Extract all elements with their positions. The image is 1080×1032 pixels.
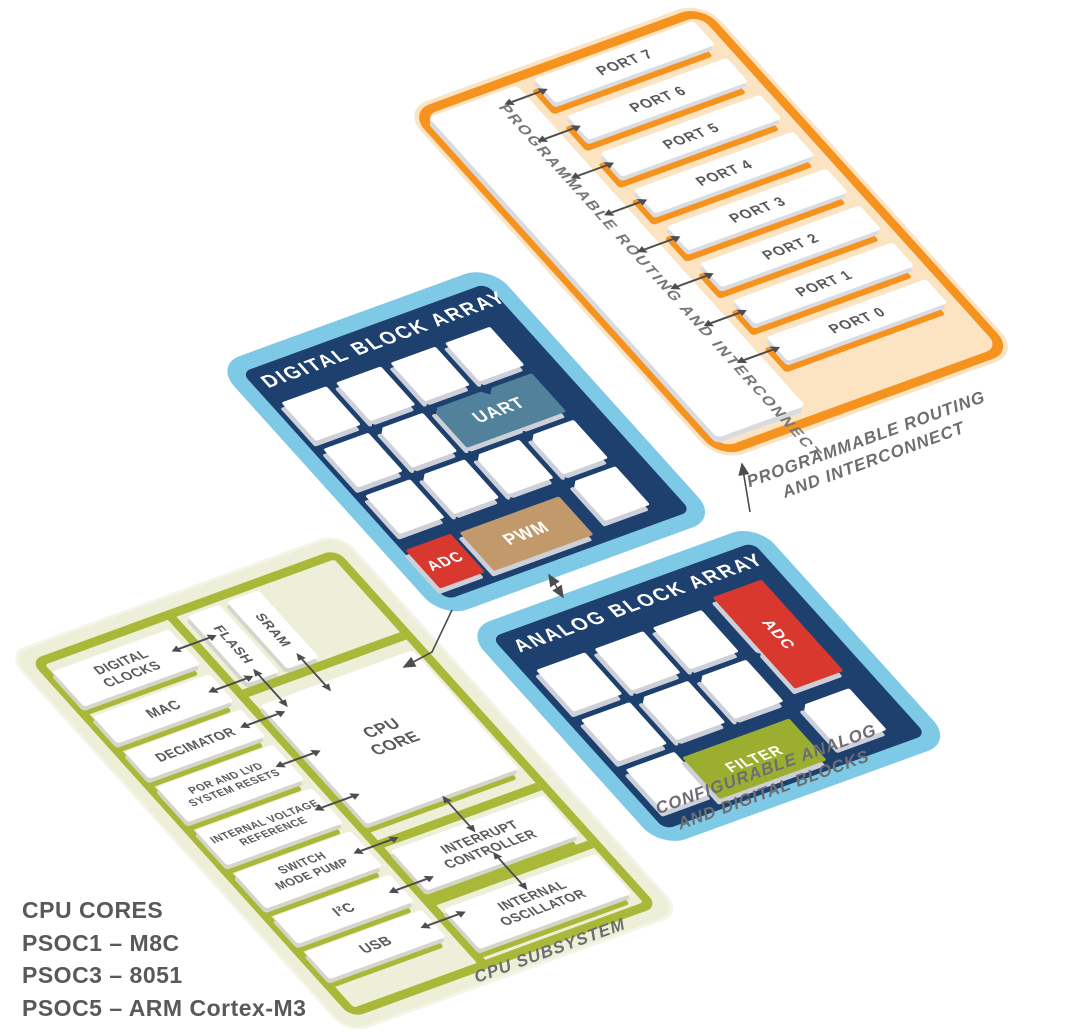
cpu-cores-legend: CPU CORES PSOC1 – M8C PSOC3 – 8051 PSOC5… [22, 894, 306, 1025]
legend-item-psoc5: PSOC5 – ARM Cortex-M3 [22, 992, 306, 1025]
psoc-architecture-diagram: PROGRAMMABLE ROUTING AND INTERCONNECT PO… [0, 0, 1080, 1030]
legend-item-psoc1: PSOC1 – M8C [22, 927, 306, 960]
analog-adc-label: ADC [757, 617, 799, 651]
legend-title: CPU CORES [22, 894, 306, 927]
legend-item-psoc3: PSOC3 – 8051 [22, 959, 306, 992]
